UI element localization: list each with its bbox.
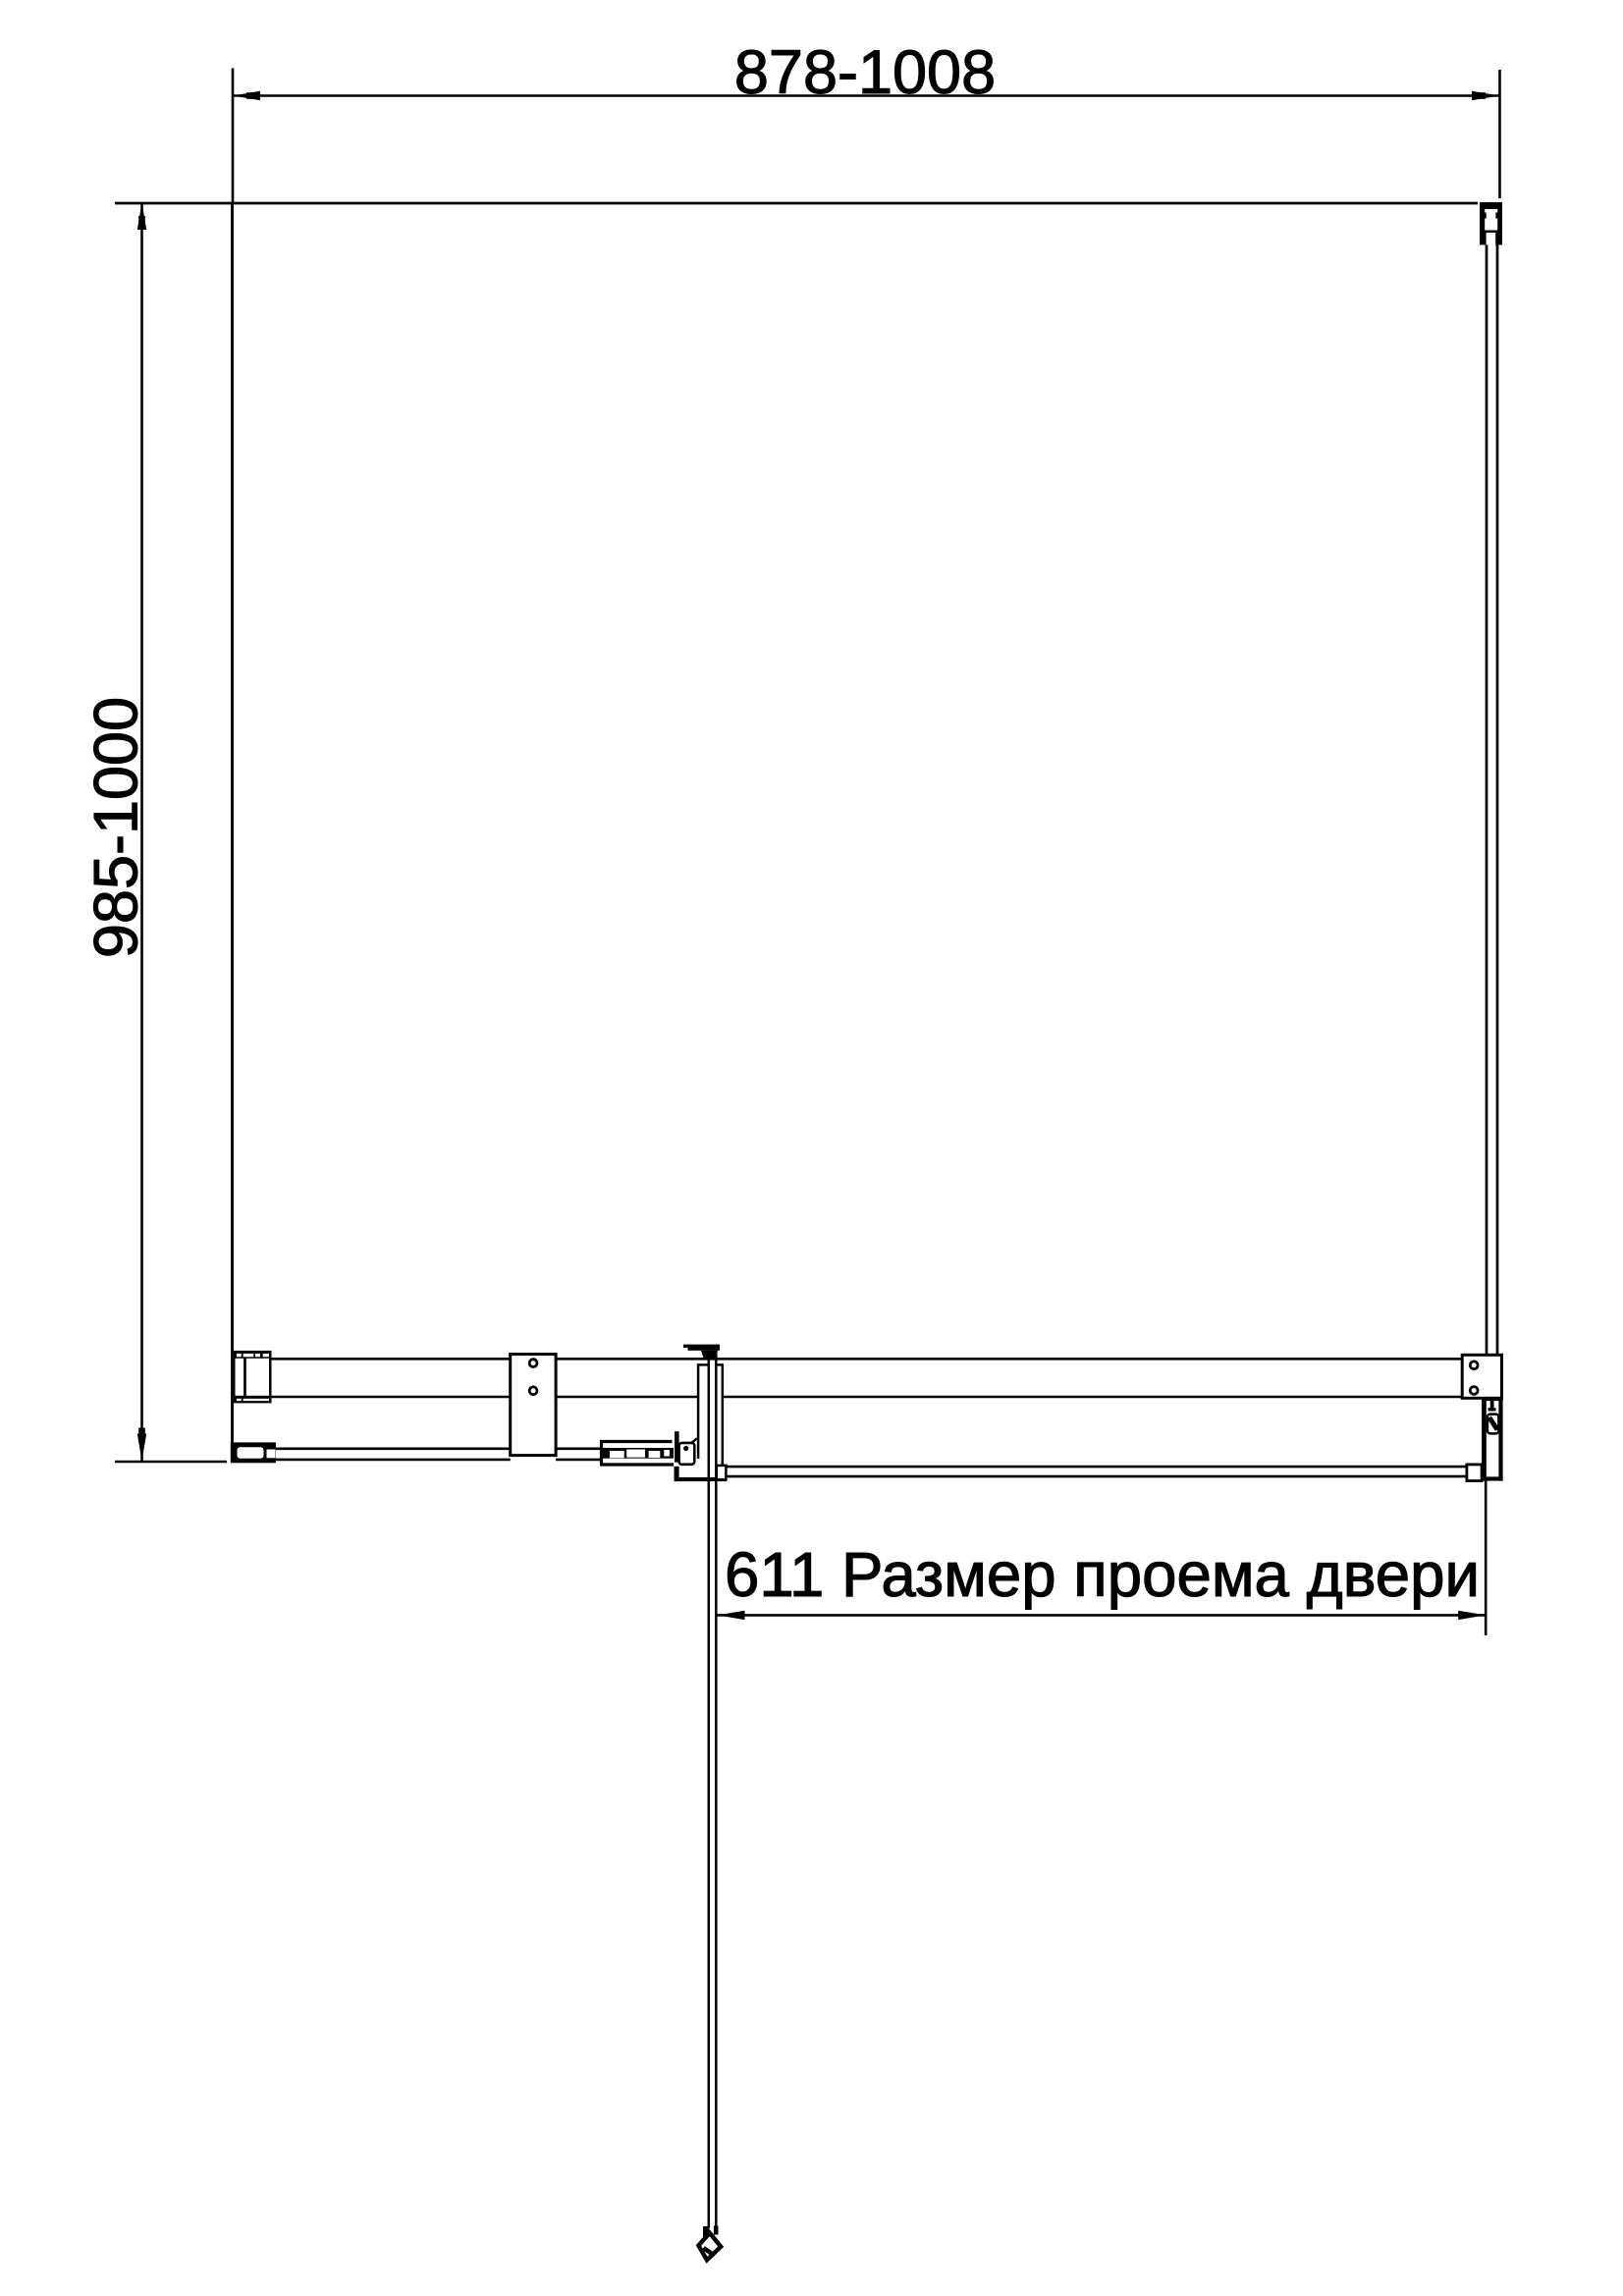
- svg-text:611 Размер проема двери: 611 Размер проема двери: [725, 1540, 1480, 1610]
- svg-text:985-1000: 985-1000: [82, 697, 151, 958]
